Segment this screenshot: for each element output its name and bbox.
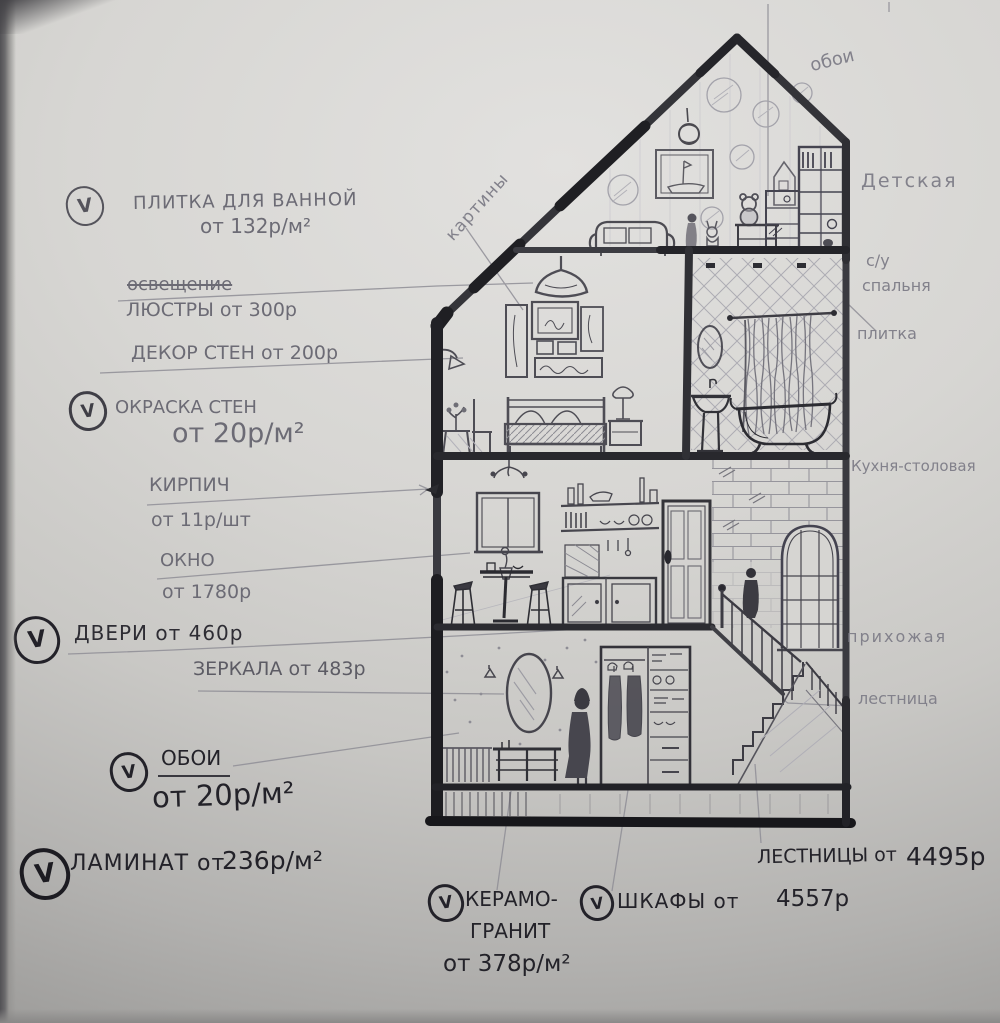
left-railing [443, 748, 492, 782]
note-wall-decor: ДЕКОР СТЕН от 200р [131, 344, 338, 364]
room-label-bedroom: спальня [862, 278, 931, 295]
note-brick-price: от 11р/шт [151, 511, 251, 531]
interior-door [663, 501, 710, 628]
pedestal-table [480, 563, 533, 621]
kitchen-utensils [608, 538, 631, 556]
note-mirrors: ЗЕРКАЛА от 483р [193, 660, 366, 680]
note-window-price: от 1780р [162, 583, 251, 603]
pendant-lamp [679, 108, 699, 144]
kitchen-window [474, 493, 543, 552]
kitchen-shelves [561, 478, 659, 531]
note-brick-title: КИРПИЧ [149, 476, 230, 496]
wallpaper-circles [608, 78, 812, 229]
arched-window [777, 526, 843, 650]
kitchen-counter [563, 578, 656, 627]
wardrobe [601, 647, 690, 786]
room-label-tile: плитка [857, 326, 917, 343]
person-silhouette [565, 688, 591, 787]
kitchen-chandelier [491, 458, 527, 478]
room-label-hallway: прихожая [847, 629, 947, 646]
note-wardrobes-price: 4557р [776, 887, 849, 911]
picture-wall [506, 302, 603, 377]
note-wall-paint-title: ОКРАСКА СТЕН [115, 399, 257, 418]
kitchen-dining [442, 458, 843, 650]
note-tile-bath-price: от 132р/м² [200, 216, 311, 237]
plinth-hatching [446, 792, 828, 816]
note-window-title: ОКНО [160, 552, 215, 571]
note-stairs-price: 4495р [906, 844, 986, 870]
paper-edge-bottom [0, 1009, 1000, 1023]
room-label-kitchen: Кухня-столовая [851, 459, 976, 475]
sketch-page: V ПЛИТКА ДЛЯ ВАННОЙ от 132р/м² освещение… [0, 0, 1000, 1023]
note-ceramic-line1: КЕРАМО- [465, 889, 558, 910]
room-label-wc: с/у [866, 253, 890, 270]
nightstand [608, 387, 643, 445]
attic-bookshelf [766, 147, 843, 250]
note-tile-bath-title: ПЛИТКА ДЛЯ ВАННОЙ [133, 191, 358, 214]
side-table-plant [443, 399, 492, 455]
attic-nursery [590, 54, 843, 256]
note-wallpaper-title: ОБОИ [161, 748, 221, 769]
picture-frame-ship [656, 150, 713, 198]
note-wardrobes-title: ШКАФЫ от [617, 891, 739, 912]
tile-crosshatch [691, 258, 843, 450]
note-ceramic-price: от 378р/м² [443, 952, 571, 976]
hallway-mirror [507, 654, 551, 732]
bed [505, 397, 606, 455]
chandelier [536, 256, 587, 297]
note-ceramic-line2: ГРАНИТ [470, 921, 550, 942]
bathroom [691, 258, 843, 453]
toy-figures [686, 214, 718, 248]
room-label-staircase: лестница [858, 691, 938, 708]
note-lighting-struck: освещение [127, 276, 232, 295]
paper-edge-left [0, 0, 18, 1023]
note-wallpaper-price: от 20р/м² [152, 778, 295, 813]
note-lighting: ЛЮСТРЫ от 300р [126, 301, 297, 321]
note-doors: ДВЕРИ от 460р [74, 623, 243, 644]
note-stairs-title: ЛЕСТНИЦЫ от [757, 846, 897, 868]
room-label-nursery: Детская [861, 172, 958, 192]
note-laminate-price: 236р/м² [222, 848, 323, 874]
backsplash-lattice [565, 545, 599, 577]
teddy-bear [740, 194, 758, 226]
note-laminate-title: ЛАМИНАТ от [70, 852, 225, 875]
note-wall-paint-price: от 20р/м² [172, 420, 305, 448]
paper-corner-dark [0, 0, 120, 34]
slatted-bench [493, 740, 561, 781]
